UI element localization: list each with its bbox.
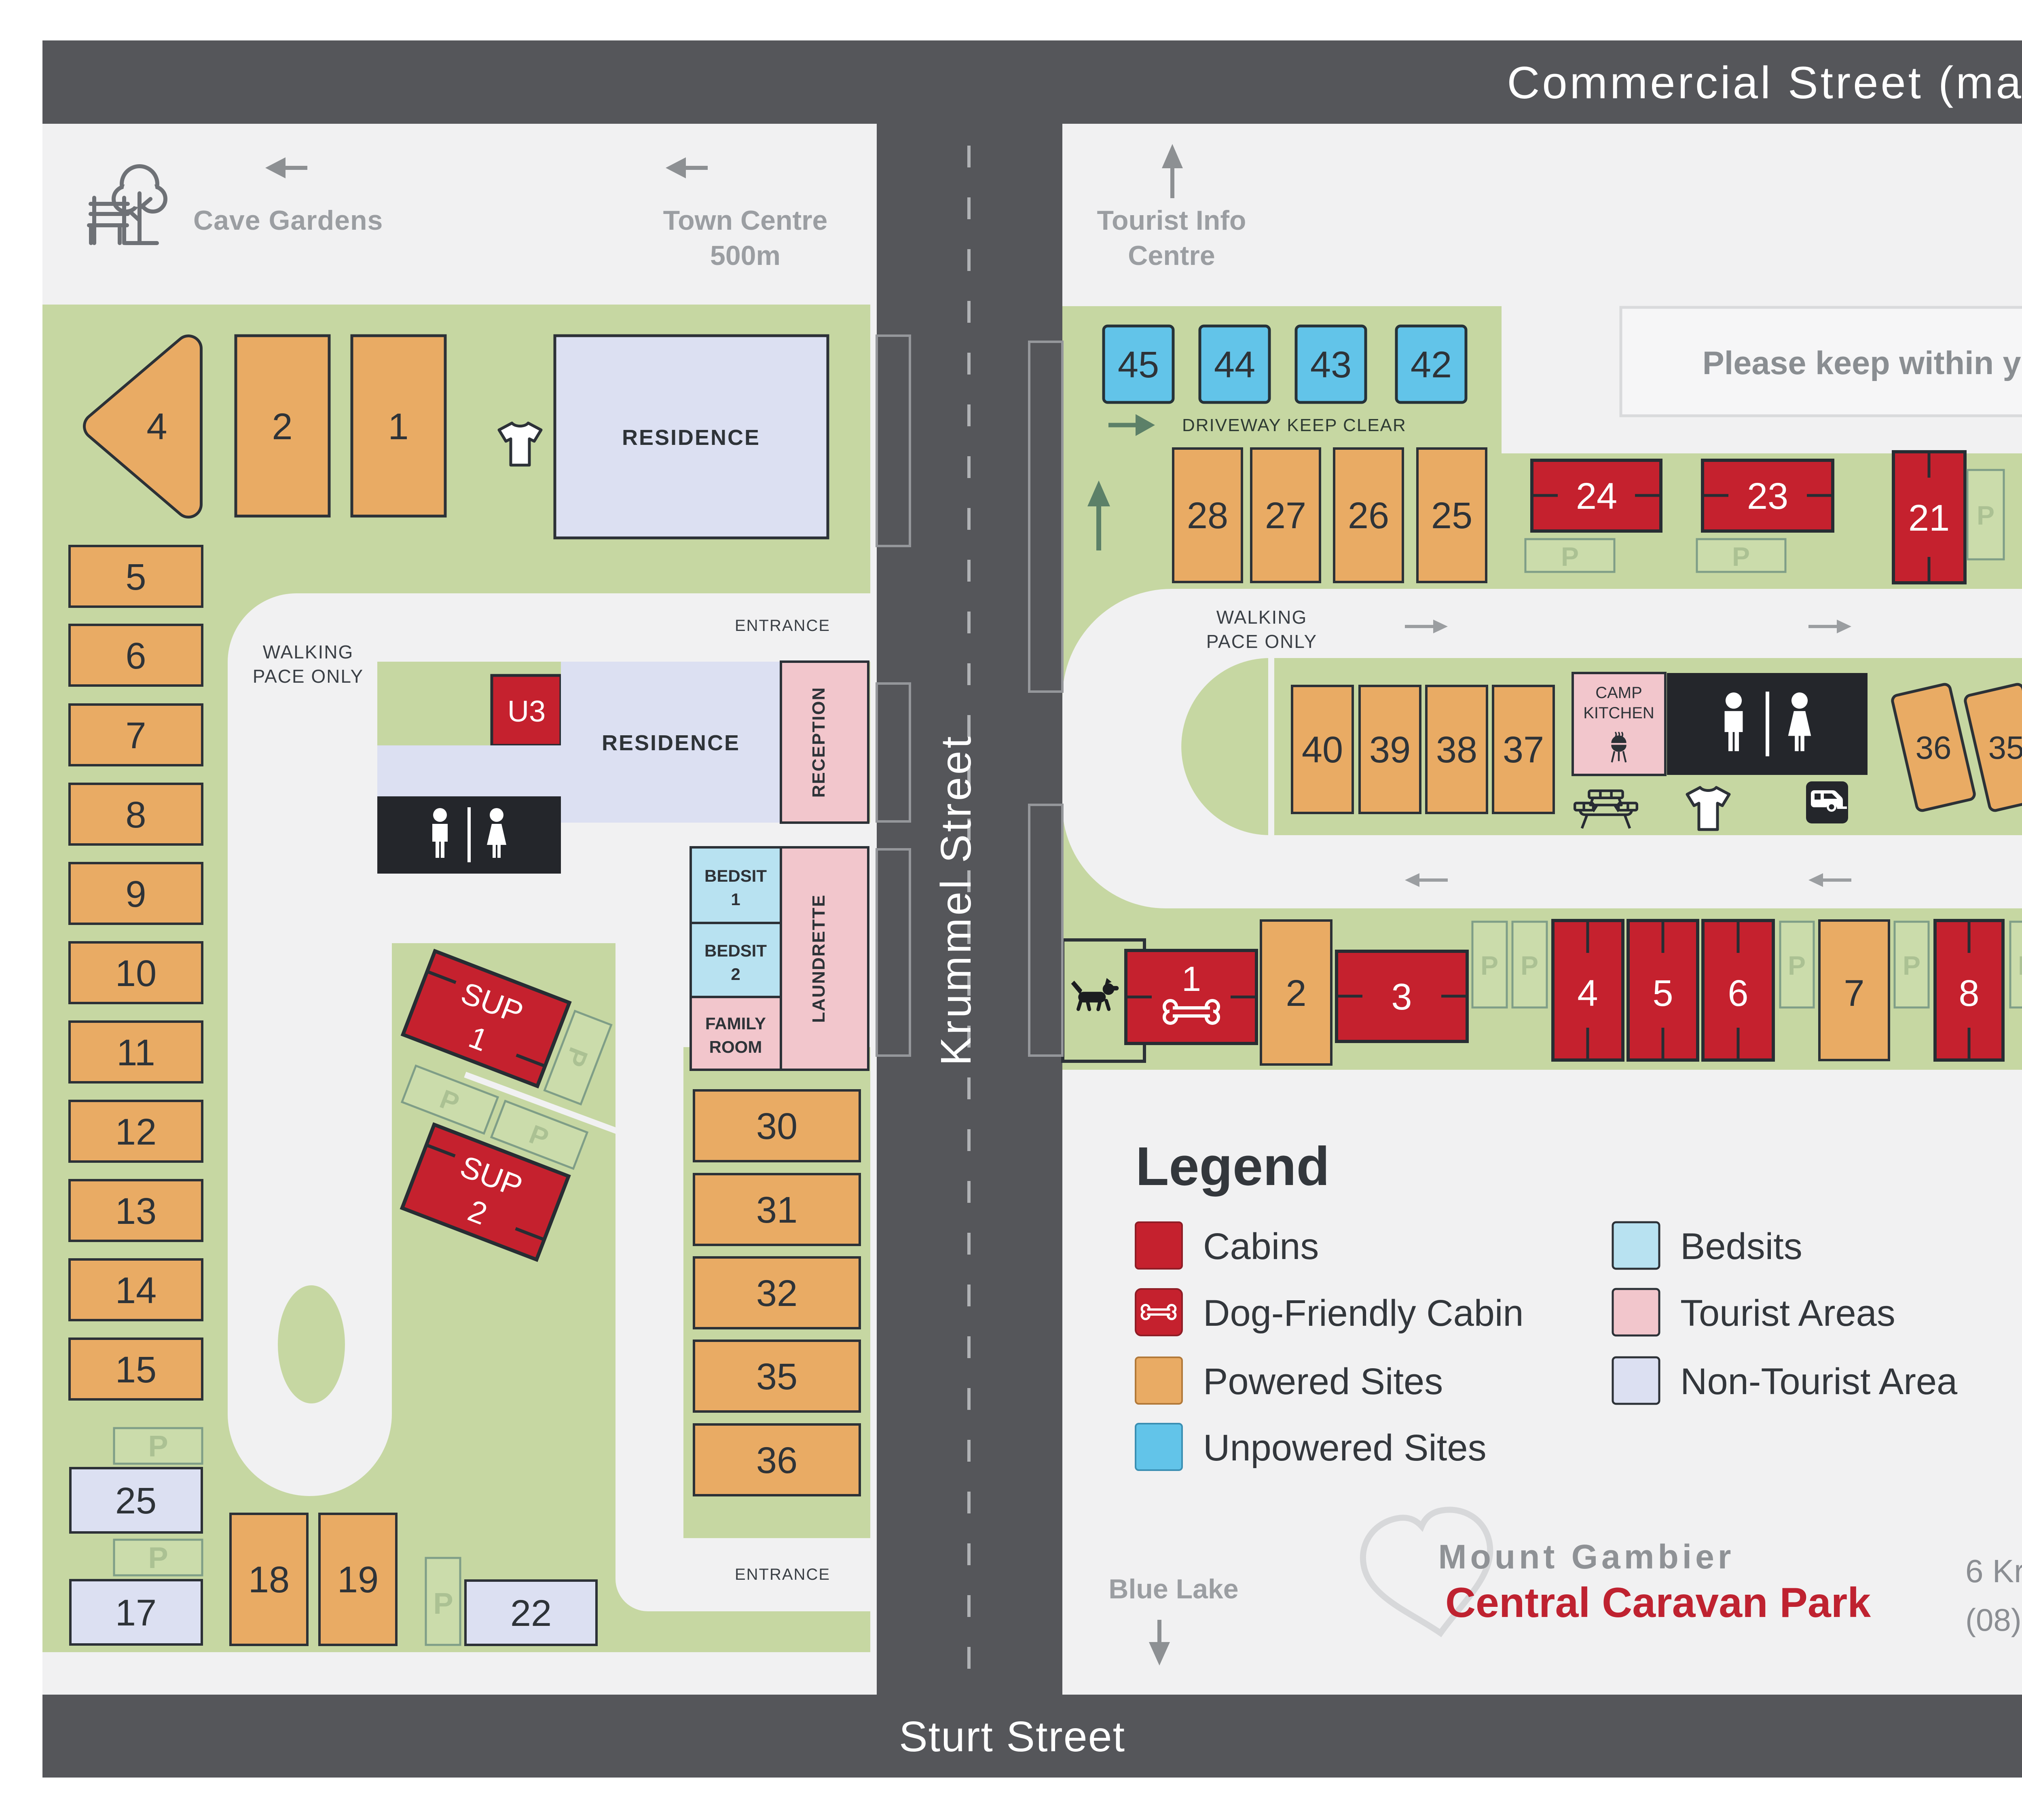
svg-text:25: 25	[1431, 495, 1472, 536]
svg-text:24: 24	[1576, 476, 1617, 517]
svg-text:Tourist Areas: Tourist Areas	[1680, 1293, 1895, 1334]
svg-text:8: 8	[1959, 973, 1979, 1014]
svg-text:38: 38	[1436, 729, 1477, 770]
svg-text:23: 23	[1747, 476, 1788, 517]
svg-text:25: 25	[115, 1480, 157, 1522]
svg-text:8: 8	[125, 794, 146, 836]
svg-text:ENTRANCE: ENTRANCE	[735, 1566, 830, 1583]
svg-text:18: 18	[248, 1559, 290, 1600]
svg-text:32: 32	[756, 1273, 797, 1314]
svg-text:RECEPTION: RECEPTION	[809, 687, 829, 798]
svg-text:36: 36	[1916, 730, 1952, 766]
svg-text:45: 45	[1118, 344, 1159, 385]
svg-text:P: P	[1788, 950, 1806, 980]
svg-text:36: 36	[756, 1440, 797, 1481]
svg-text:RESIDENCE: RESIDENCE	[622, 425, 760, 450]
svg-text:Powered Sites: Powered Sites	[1203, 1361, 1443, 1402]
svg-text:P: P	[2018, 950, 2022, 980]
svg-text:Sturt Street: Sturt Street	[899, 1713, 1125, 1761]
svg-text:7: 7	[1844, 973, 1864, 1014]
svg-text:17: 17	[115, 1592, 157, 1634]
svg-text:500m: 500m	[710, 240, 780, 271]
svg-text:P: P	[148, 1429, 168, 1463]
svg-text:Unpowered Sites: Unpowered Sites	[1203, 1427, 1487, 1469]
svg-text:Commercial Street (main street: Commercial Street (main street)	[1507, 57, 2022, 108]
svg-text:9: 9	[125, 874, 146, 915]
svg-text:P: P	[1521, 950, 1538, 980]
svg-text:P: P	[1903, 950, 1920, 980]
svg-text:37: 37	[1503, 729, 1544, 770]
svg-text:Cave Gardens: Cave Gardens	[193, 205, 383, 236]
svg-text:P: P	[148, 1541, 168, 1575]
svg-text:1: 1	[1182, 960, 1201, 999]
svg-text:U3: U3	[508, 694, 546, 728]
svg-text:Tourist Info: Tourist Info	[1097, 205, 1246, 236]
svg-text:Legend: Legend	[1136, 1136, 1330, 1197]
svg-text:Town Centre: Town Centre	[663, 205, 828, 236]
svg-text:Krummel Street: Krummel Street	[932, 734, 980, 1066]
svg-text:19: 19	[337, 1559, 379, 1600]
svg-text:PACE ONLY: PACE ONLY	[253, 666, 364, 687]
svg-text:KITCHEN: KITCHEN	[1583, 704, 1654, 722]
svg-text:DRIVEWAY KEEP CLEAR: DRIVEWAY KEEP CLEAR	[1182, 415, 1407, 435]
svg-text:Dog-Friendly Cabin: Dog-Friendly Cabin	[1203, 1293, 1524, 1334]
svg-text:LAUNDRETTE: LAUNDRETTE	[809, 894, 829, 1023]
svg-text:4: 4	[146, 406, 167, 447]
svg-text:P: P	[1561, 542, 1579, 571]
svg-text:BEDSIT: BEDSIT	[704, 866, 767, 885]
svg-text:40: 40	[1302, 729, 1343, 770]
svg-text:Blue Lake: Blue Lake	[1108, 1574, 1238, 1604]
svg-text:RESIDENCE: RESIDENCE	[602, 731, 740, 755]
svg-text:7: 7	[125, 715, 146, 756]
svg-text:5: 5	[1652, 973, 1673, 1014]
svg-text:P: P	[1732, 542, 1750, 571]
svg-text:Cabins: Cabins	[1203, 1226, 1319, 1267]
svg-text:WALKING: WALKING	[1216, 607, 1307, 628]
svg-text:Centre: Centre	[1128, 240, 1215, 271]
svg-text:Central Caravan Park: Central Caravan Park	[1445, 1579, 1871, 1626]
svg-text:6: 6	[125, 635, 146, 677]
svg-text:35: 35	[1988, 730, 2022, 766]
svg-text:13: 13	[115, 1191, 157, 1232]
svg-text:22: 22	[510, 1593, 552, 1634]
svg-text:11: 11	[116, 1032, 155, 1073]
svg-text:44: 44	[1214, 344, 1255, 385]
svg-text:10: 10	[115, 953, 157, 994]
svg-text:ENTRANCE: ENTRANCE	[735, 617, 830, 635]
svg-text:14: 14	[115, 1270, 157, 1311]
svg-text:2: 2	[731, 965, 740, 984]
svg-text:1: 1	[388, 406, 408, 447]
svg-text:CAMP: CAMP	[1595, 684, 1642, 702]
svg-text:BEDSIT: BEDSIT	[704, 941, 767, 960]
svg-text:ROOM: ROOM	[709, 1037, 762, 1056]
svg-text:WALKING: WALKING	[263, 641, 353, 662]
svg-text:27: 27	[1265, 495, 1306, 536]
svg-text:P: P	[1481, 950, 1498, 980]
svg-text:Bedsits: Bedsits	[1680, 1226, 1802, 1267]
svg-text:P: P	[1977, 500, 1995, 530]
svg-text:FAMILY: FAMILY	[705, 1014, 766, 1033]
svg-text:21: 21	[1908, 497, 1950, 539]
svg-text:12: 12	[115, 1111, 157, 1153]
svg-text:39: 39	[1369, 729, 1411, 770]
svg-text:4: 4	[1577, 973, 1598, 1014]
svg-text:31: 31	[756, 1189, 797, 1231]
svg-text:(08) 8725 4427 stay@mgccp.com.: (08) 8725 4427 stay@mgccp.com.au	[1965, 1602, 2022, 1638]
svg-text:30: 30	[756, 1106, 797, 1147]
svg-text:Please keep within your design: Please keep within your designated site	[1703, 345, 2022, 381]
svg-text:P: P	[433, 1587, 453, 1620]
svg-text:PACE ONLY: PACE ONLY	[1206, 631, 1317, 652]
svg-text:3: 3	[1391, 976, 1412, 1018]
svg-text:2: 2	[272, 406, 292, 447]
svg-text:42: 42	[1411, 344, 1452, 385]
svg-text:Non-Tourist Area: Non-Tourist Area	[1680, 1361, 1958, 1402]
svg-text:43: 43	[1310, 344, 1352, 385]
svg-text:6: 6	[1728, 973, 1748, 1014]
svg-text:35: 35	[756, 1356, 797, 1397]
svg-text:15: 15	[115, 1349, 157, 1390]
svg-text:1: 1	[731, 890, 740, 909]
svg-text:2: 2	[1286, 973, 1306, 1014]
svg-text:6 Krummel Street, Mount Gambie: 6 Krummel Street, Mount Gambier	[1965, 1553, 2022, 1589]
svg-text:Mount Gambier: Mount Gambier	[1438, 1538, 1734, 1576]
svg-text:28: 28	[1187, 495, 1228, 536]
svg-text:5: 5	[125, 557, 146, 598]
svg-text:26: 26	[1348, 495, 1389, 536]
